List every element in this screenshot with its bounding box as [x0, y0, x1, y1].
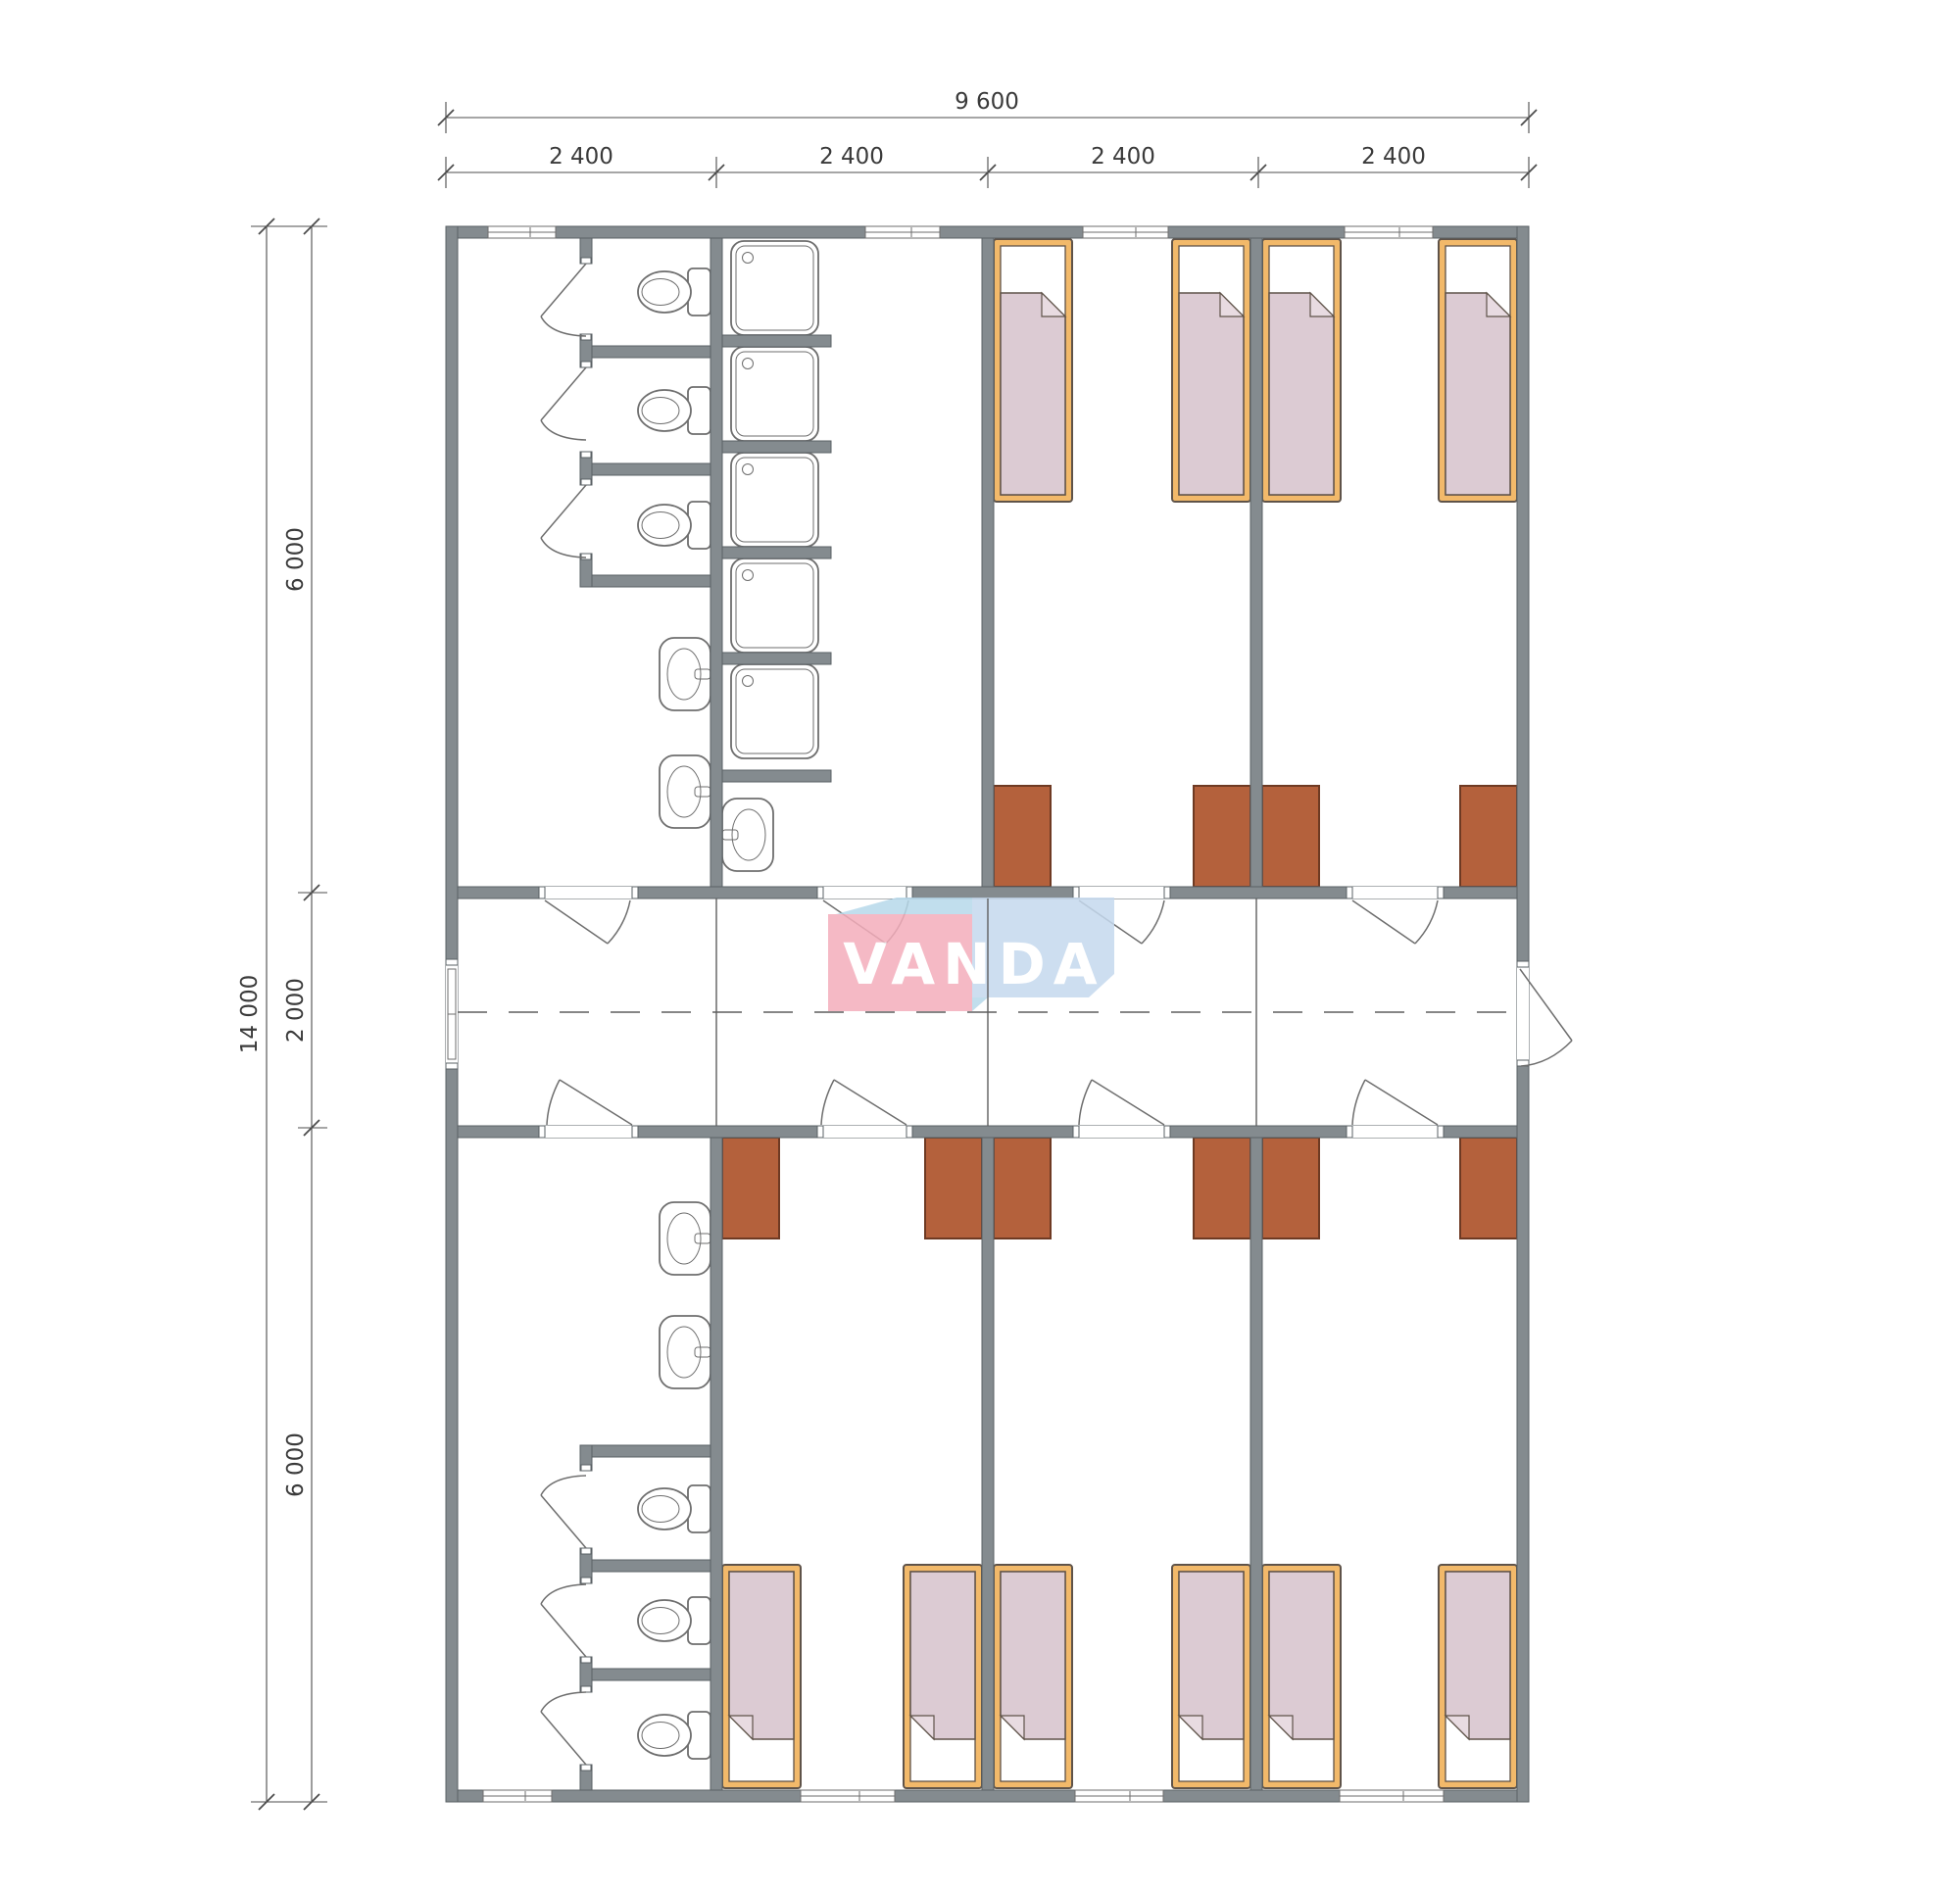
toilet — [638, 268, 710, 316]
window — [1083, 226, 1168, 238]
bed — [722, 1565, 801, 1788]
wardrobe — [1262, 1138, 1319, 1238]
dim-label-section-corridor: 2 000 — [283, 978, 309, 1043]
wardrobe — [925, 1138, 982, 1238]
window — [1075, 1790, 1163, 1802]
dim-label-module-1: 2 400 — [549, 144, 613, 170]
dim-label-total-depth: 14 000 — [237, 975, 263, 1053]
stall-zone-wall — [580, 575, 710, 587]
stall-divider — [586, 346, 710, 358]
window — [488, 226, 556, 238]
shower-stub — [722, 547, 831, 558]
building — [446, 226, 1572, 1802]
sink — [660, 755, 710, 828]
shower-stub — [722, 770, 831, 782]
dimension-top-overall: 9 600 — [438, 89, 1537, 133]
dim-label-module-4: 2 400 — [1361, 144, 1426, 170]
shower-tray — [731, 347, 818, 441]
wall-module-a-top — [710, 238, 722, 887]
stall-divider — [586, 1669, 710, 1680]
bed — [1439, 1565, 1517, 1788]
wardrobe — [1194, 786, 1250, 887]
wall-module-a-bottom — [710, 1138, 722, 1790]
bed — [994, 1565, 1072, 1788]
dim-label-total-width: 9 600 — [955, 89, 1019, 115]
shower-tray — [731, 241, 818, 335]
shower-tray — [731, 453, 818, 547]
toilet — [638, 1485, 710, 1532]
dimension-top-modules: 2 400 2 400 2 400 2 400 — [438, 144, 1537, 188]
toilet — [638, 387, 710, 434]
stall-divider — [586, 463, 710, 475]
vanda-logo: VANDA — [828, 898, 1114, 1011]
showers — [731, 241, 818, 758]
dim-label-module-3: 2 400 — [1091, 144, 1155, 170]
wardrobe — [994, 786, 1051, 887]
window — [483, 1790, 552, 1802]
bed — [1262, 239, 1341, 502]
wardrobe — [1194, 1138, 1250, 1238]
wardrobe — [722, 1138, 779, 1238]
floor-plan-svg: 9 600 2 400 2 400 2 400 2 400 14 000 6 — [0, 0, 1960, 1894]
shower-stub — [722, 335, 831, 347]
bed — [904, 1565, 982, 1788]
shower-tray — [731, 664, 818, 758]
window — [865, 226, 940, 238]
shower-stub — [722, 653, 831, 664]
sink — [660, 1316, 710, 1388]
window — [801, 1790, 895, 1802]
dim-label-section-top: 6 000 — [283, 527, 309, 592]
dimension-left-sections: 6 000 2 000 6 000 — [283, 219, 327, 1810]
wardrobe — [1262, 786, 1319, 887]
bed — [994, 239, 1072, 502]
bed — [1172, 239, 1250, 502]
sink — [722, 799, 773, 871]
dim-label-section-bottom: 6 000 — [283, 1433, 309, 1497]
toilet — [638, 502, 710, 549]
toilet — [638, 1597, 710, 1644]
dim-label-module-2: 2 400 — [819, 144, 884, 170]
shower-stub — [722, 441, 831, 453]
wardrobe — [1460, 786, 1517, 887]
sink — [660, 638, 710, 710]
bed — [1172, 1565, 1250, 1788]
dimension-left-overall: 14 000 — [237, 219, 327, 1810]
shower-tray — [731, 558, 818, 653]
wall-module-b-bottom — [982, 1138, 994, 1790]
wall-module-b-top — [982, 238, 994, 887]
stall-zone-wall — [580, 1445, 710, 1457]
logo-text: VANDA — [843, 931, 1104, 997]
wall-module-c-top — [1250, 238, 1262, 887]
floor-plan: 9 600 2 400 2 400 2 400 2 400 14 000 6 — [0, 0, 1960, 1894]
bed — [1262, 1565, 1341, 1788]
stall-divider — [586, 1560, 710, 1572]
window — [1345, 226, 1433, 238]
toilet — [638, 1712, 710, 1759]
sink — [660, 1202, 710, 1275]
bed — [1439, 239, 1517, 502]
wall-module-c-bottom — [1250, 1138, 1262, 1790]
window — [1340, 1790, 1444, 1802]
wardrobe — [1460, 1138, 1517, 1238]
wardrobe — [994, 1138, 1051, 1238]
